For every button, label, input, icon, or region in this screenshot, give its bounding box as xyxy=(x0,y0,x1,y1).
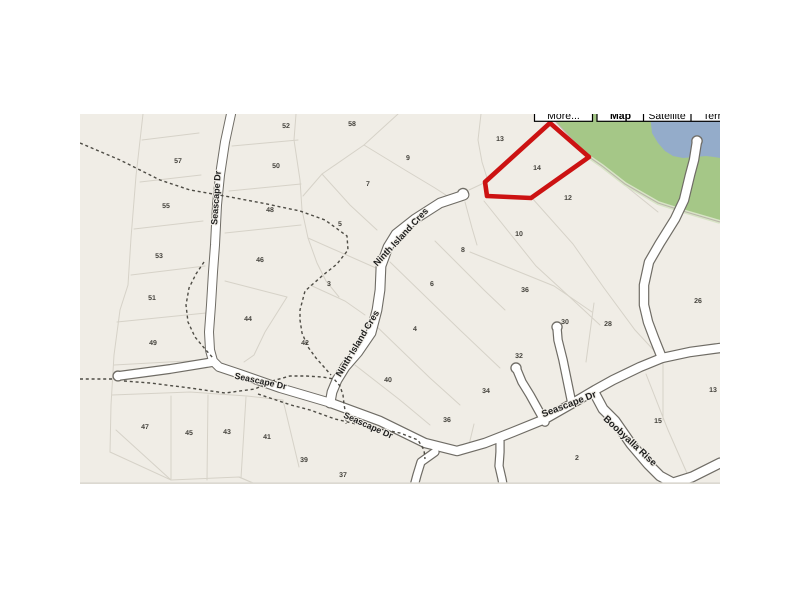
svg-text:15: 15 xyxy=(654,418,662,425)
svg-text:12: 12 xyxy=(564,195,572,202)
svg-text:28: 28 xyxy=(604,321,612,328)
svg-text:43: 43 xyxy=(223,429,231,436)
svg-text:13: 13 xyxy=(709,387,717,394)
svg-text:46: 46 xyxy=(256,257,264,264)
svg-text:40: 40 xyxy=(384,377,392,384)
svg-text:8: 8 xyxy=(461,247,465,254)
svg-text:49: 49 xyxy=(149,340,157,347)
svg-text:30: 30 xyxy=(561,319,569,326)
svg-text:9: 9 xyxy=(406,155,410,162)
svg-text:45: 45 xyxy=(185,430,193,437)
svg-text:52: 52 xyxy=(282,123,290,130)
svg-text:41: 41 xyxy=(263,434,271,441)
svg-text:5: 5 xyxy=(338,221,342,228)
svg-text:Map: Map xyxy=(610,114,631,122)
svg-text:13: 13 xyxy=(496,136,504,143)
svg-text:50: 50 xyxy=(272,163,280,170)
svg-text:Satellite: Satellite xyxy=(648,114,686,122)
svg-text:39: 39 xyxy=(300,457,308,464)
svg-text:3: 3 xyxy=(327,281,331,288)
svg-text:2: 2 xyxy=(575,455,579,462)
svg-text:4: 4 xyxy=(413,326,417,333)
svg-text:36: 36 xyxy=(521,287,529,294)
svg-text:58: 58 xyxy=(348,121,356,128)
svg-text:26: 26 xyxy=(694,298,702,305)
svg-text:More...: More... xyxy=(547,114,580,122)
svg-text:37: 37 xyxy=(339,472,347,479)
svg-text:10: 10 xyxy=(515,231,523,238)
svg-text:42: 42 xyxy=(301,340,309,347)
svg-text:34: 34 xyxy=(482,388,490,395)
svg-text:32: 32 xyxy=(515,353,523,360)
svg-text:57: 57 xyxy=(174,158,182,165)
svg-text:6: 6 xyxy=(430,281,434,288)
svg-text:51: 51 xyxy=(148,295,156,302)
svg-text:Terra: Terra xyxy=(703,114,720,122)
svg-text:36: 36 xyxy=(443,417,451,424)
svg-text:14: 14 xyxy=(533,165,541,172)
svg-text:7: 7 xyxy=(366,181,370,188)
svg-text:48: 48 xyxy=(266,207,274,214)
svg-text:55: 55 xyxy=(162,203,170,210)
svg-text:47: 47 xyxy=(141,424,149,431)
svg-text:44: 44 xyxy=(244,316,252,323)
svg-text:53: 53 xyxy=(155,253,163,260)
